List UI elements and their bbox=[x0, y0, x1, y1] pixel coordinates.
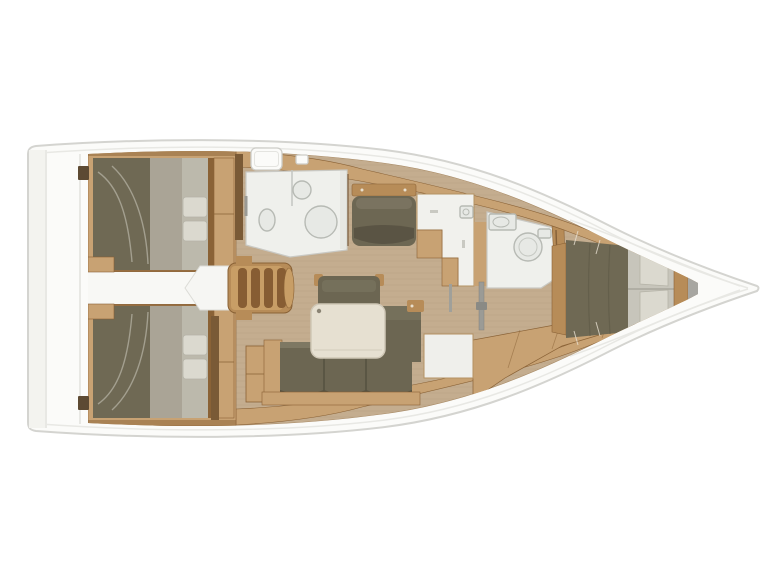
floorplan-canvas bbox=[0, 0, 770, 577]
step-slat bbox=[251, 268, 260, 308]
toilet-tank bbox=[538, 229, 551, 238]
island-berth-mattress bbox=[566, 240, 628, 338]
shower-drain bbox=[293, 181, 311, 199]
cabin-corner-post-starboard bbox=[78, 396, 89, 410]
pillow bbox=[183, 197, 207, 217]
berth-foot-rail bbox=[552, 243, 566, 335]
bench-cushion-highlight bbox=[356, 198, 412, 209]
head-wall-shadow bbox=[340, 171, 347, 249]
bench-seat bbox=[352, 184, 416, 246]
cabin-step-starboard bbox=[88, 304, 114, 319]
step-slat bbox=[238, 268, 247, 308]
bulkhead-starboard bbox=[211, 316, 219, 420]
galley-front bbox=[442, 258, 458, 286]
aft-head bbox=[246, 170, 347, 257]
sofa-wood-cap bbox=[407, 300, 424, 312]
washbasin-aft bbox=[259, 209, 275, 231]
rail-fitting bbox=[404, 189, 407, 192]
cabin-step-port bbox=[88, 257, 114, 272]
shower-seat bbox=[305, 206, 337, 238]
companionway bbox=[185, 256, 294, 320]
corridor-floor bbox=[88, 272, 200, 304]
steps-tab-top bbox=[236, 256, 252, 264]
table-fitting bbox=[317, 309, 321, 313]
berth-wood-divider bbox=[208, 158, 214, 270]
transom-shade bbox=[29, 150, 45, 428]
galley-front bbox=[417, 230, 442, 258]
step-slat bbox=[264, 268, 273, 308]
rail-fitting bbox=[361, 189, 364, 192]
mast-fitting bbox=[476, 302, 487, 310]
galley-sink bbox=[460, 206, 473, 218]
yacht-floorplan-svg bbox=[0, 0, 770, 577]
counter-handle bbox=[462, 240, 465, 248]
berth-duvet bbox=[150, 158, 184, 270]
fridge-counter bbox=[424, 334, 473, 378]
steps-end-cap bbox=[284, 268, 294, 308]
deck-hatch-small bbox=[296, 155, 308, 164]
grab-post bbox=[449, 284, 452, 312]
aft-cabin-port bbox=[88, 150, 236, 272]
cabin-corner-post-port bbox=[78, 166, 89, 180]
cap-fitting bbox=[411, 305, 414, 308]
sofa-plinth bbox=[262, 392, 420, 405]
steps-tab-bottom bbox=[236, 312, 252, 320]
counter-handle bbox=[430, 210, 438, 213]
chair-highlight bbox=[322, 280, 376, 292]
bulkhead-port bbox=[235, 154, 243, 240]
pillow bbox=[183, 221, 207, 241]
